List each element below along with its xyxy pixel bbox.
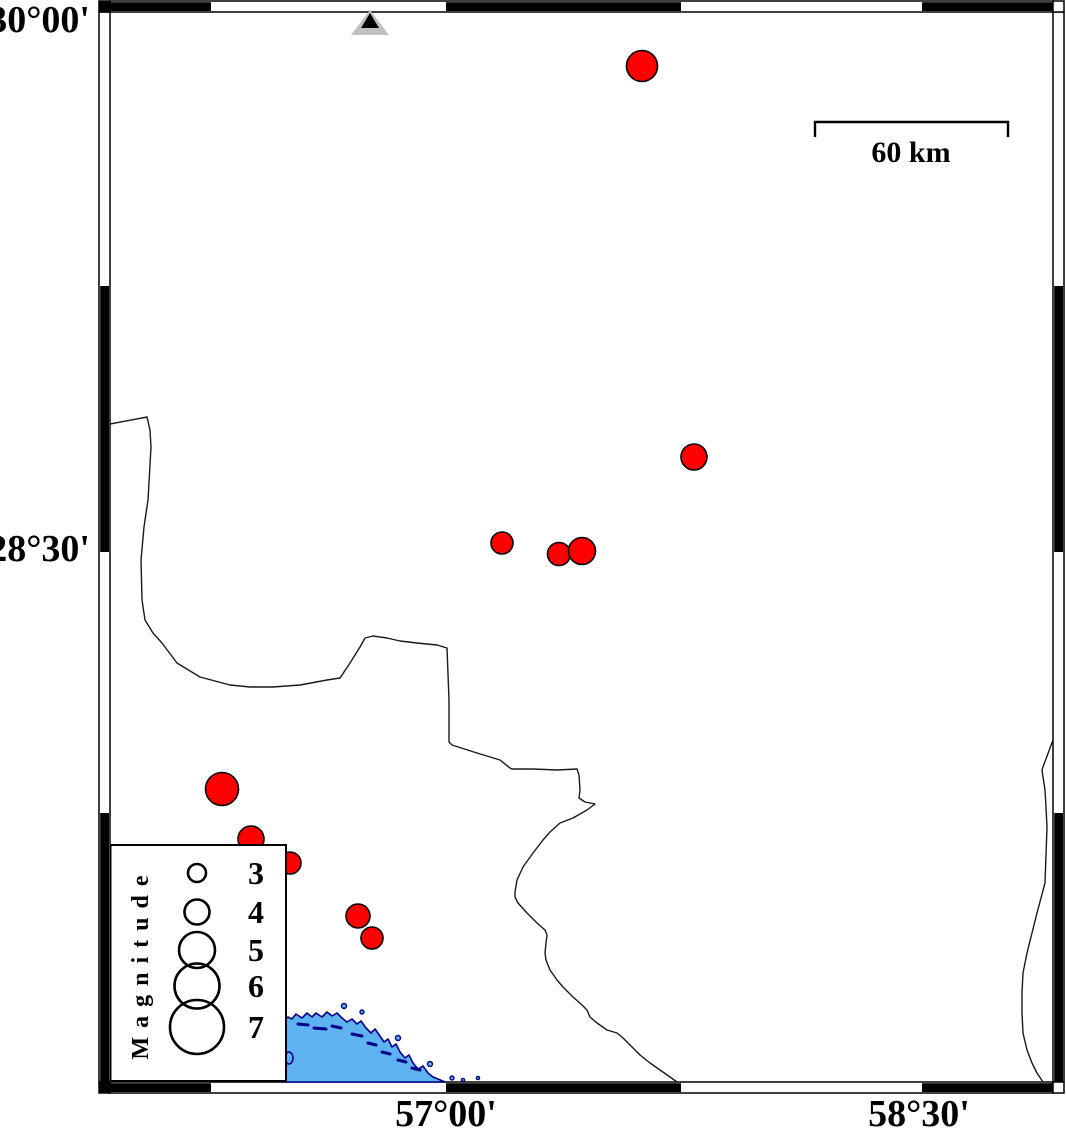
scale-bar-line bbox=[815, 122, 1008, 137]
earthquake-marker bbox=[627, 51, 658, 82]
legend-title: Magnitude bbox=[128, 866, 154, 1059]
earthquake-marker bbox=[346, 904, 370, 928]
earthquake-marker bbox=[569, 538, 596, 565]
magnitude-legend: Magnitude 34567 bbox=[111, 845, 287, 1081]
earthquake-markers bbox=[206, 51, 708, 950]
legend-label-mag-7: 7 bbox=[248, 1009, 264, 1045]
lat-label-mid: 28°30' bbox=[0, 528, 90, 570]
boundary-line-east bbox=[1022, 740, 1053, 1082]
lon-label-left: 57°00' bbox=[395, 1093, 497, 1130]
legend-label-mag-4: 4 bbox=[248, 894, 264, 930]
scale-bar-label: 60 km bbox=[871, 136, 950, 169]
earthquake-marker bbox=[361, 927, 383, 949]
earthquake-marker bbox=[548, 543, 571, 566]
legend-label-mag-6: 6 bbox=[248, 968, 264, 1004]
earthquake-marker bbox=[491, 532, 513, 554]
legend-label-mag-5: 5 bbox=[248, 932, 264, 968]
lon-label-right: 58°30' bbox=[868, 1093, 970, 1130]
earthquake-marker bbox=[681, 444, 707, 470]
earthquake-marker bbox=[206, 773, 239, 806]
legend-label-mag-3: 3 bbox=[248, 855, 264, 891]
scale-bar: 60 km bbox=[815, 122, 1008, 169]
seismicity-map: 60 km Magnitude 34567 30°00' 28°30' 57°0… bbox=[0, 0, 1066, 1130]
water-body bbox=[282, 1004, 480, 1083]
station-triangle bbox=[351, 10, 389, 35]
lat-label-top: 30°00' bbox=[0, 0, 90, 41]
